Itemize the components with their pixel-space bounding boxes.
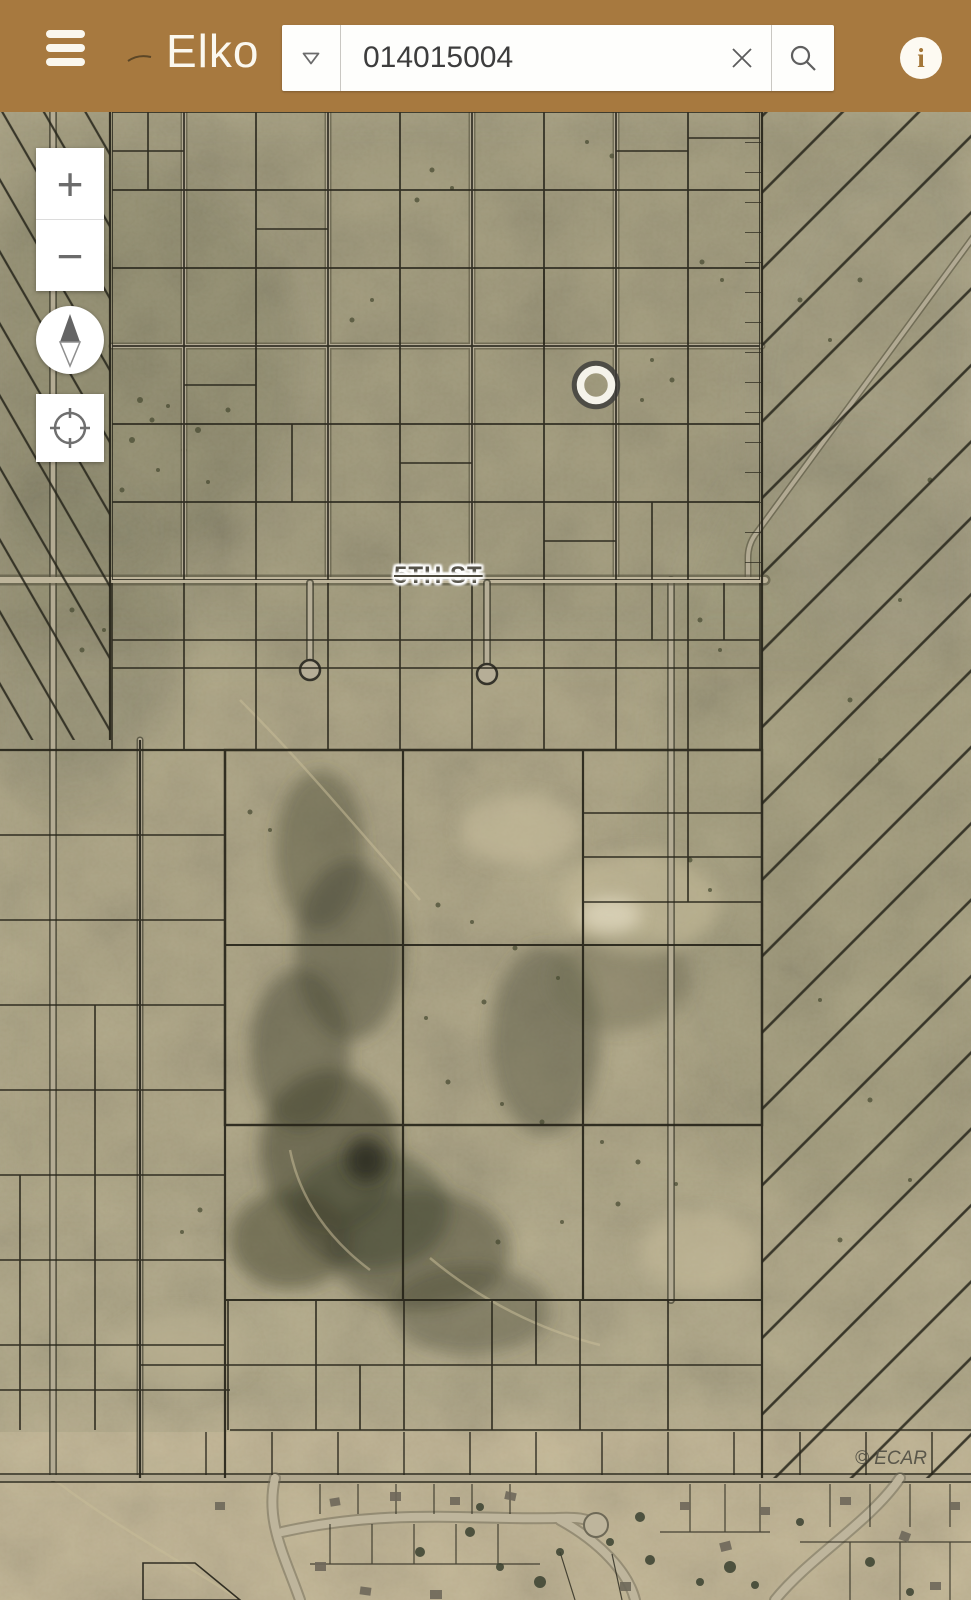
- search-bar: [282, 25, 834, 91]
- zoom-in-button[interactable]: +: [36, 148, 104, 219]
- app-title: Elko: [166, 24, 259, 78]
- locate-icon: [36, 394, 104, 462]
- zoom-control: + −: [36, 148, 104, 291]
- search-type-dropdown[interactable]: [282, 25, 340, 91]
- zoom-out-button[interactable]: −: [36, 220, 104, 291]
- info-button[interactable]: i: [900, 37, 942, 79]
- compass-button[interactable]: [36, 306, 104, 374]
- menu-button[interactable]: [46, 28, 88, 74]
- menu-icon: [46, 58, 85, 66]
- search-input[interactable]: [341, 25, 713, 91]
- chevron-down-icon: [301, 51, 321, 66]
- map-canvas[interactable]: [0, 112, 971, 1600]
- menu-icon: [46, 30, 85, 38]
- logo-swoosh: [126, 52, 154, 64]
- clear-search-button[interactable]: [713, 25, 771, 91]
- close-icon: [729, 45, 755, 71]
- app-header: Elko i: [0, 0, 971, 112]
- map-svg: [0, 112, 971, 1600]
- search-button[interactable]: [772, 25, 834, 91]
- compass-needle-icon: [36, 306, 104, 374]
- search-icon: [787, 42, 819, 74]
- menu-icon: [46, 44, 85, 52]
- app-window: 5TH ST © ECAR + − Elko: [0, 0, 971, 1600]
- locate-button[interactable]: [36, 394, 104, 462]
- street-label: 5TH ST: [394, 562, 483, 590]
- map-attribution: © ECAR: [855, 1448, 927, 1470]
